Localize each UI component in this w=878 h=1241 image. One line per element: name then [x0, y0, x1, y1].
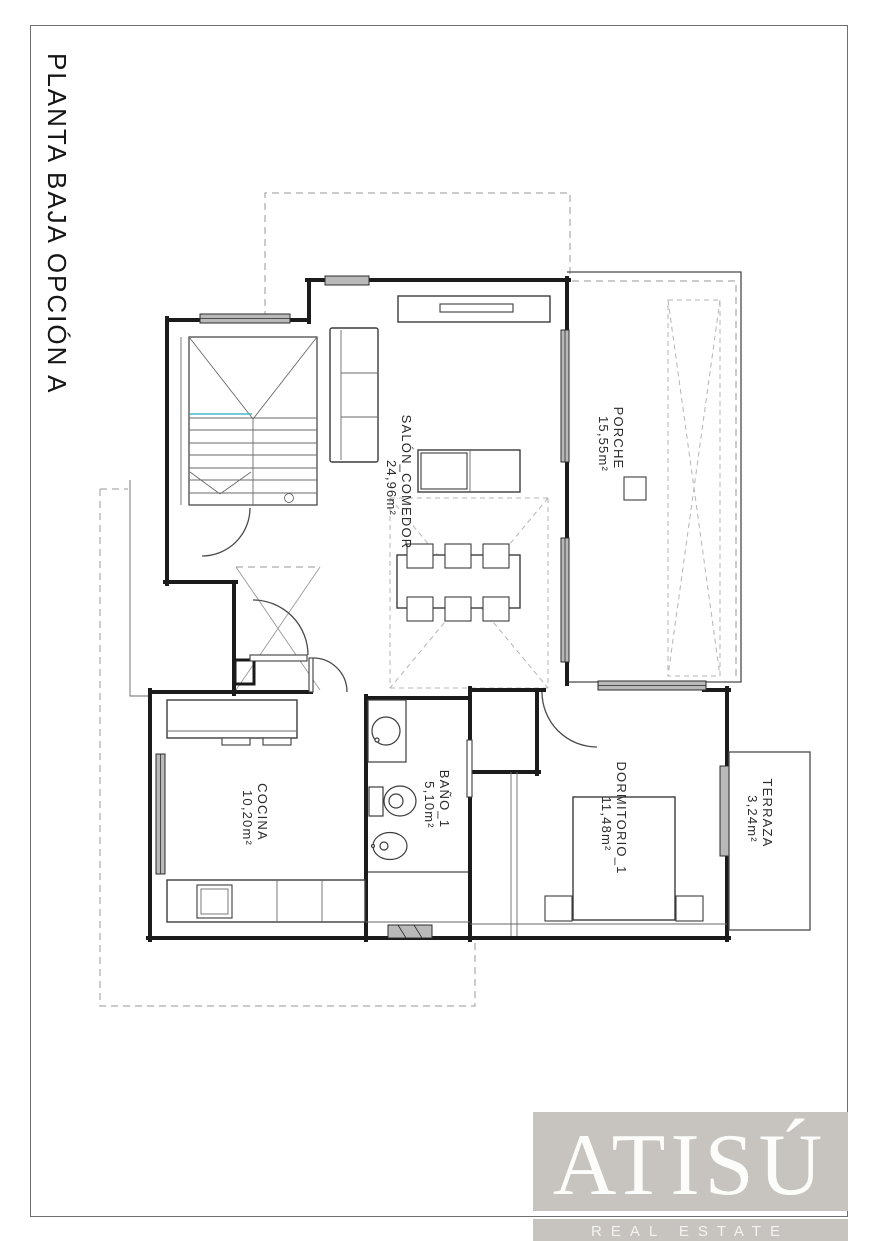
room-name: BAÑO_1 [437, 770, 452, 829]
logo-tagline: REAL ESTATE [591, 1223, 789, 1240]
brand-logo: ATISÚ REAL ESTATE [533, 1112, 848, 1241]
entry-cross-lines [236, 567, 320, 690]
window-salon-top [325, 276, 369, 285]
closet-partition [511, 772, 517, 936]
room-area: 15,55m² [596, 416, 611, 472]
room-name: COCINA [255, 783, 270, 841]
staircase [181, 337, 317, 505]
nightstand-right [676, 896, 703, 921]
page-border [31, 26, 848, 1217]
porch [567, 272, 741, 682]
bathroom-door-leaf [467, 740, 472, 797]
wall-west-upper [165, 318, 236, 694]
porch-roof-dashed [572, 281, 736, 678]
sideboard-shelf [440, 304, 513, 312]
room-name: SALÓN_COMEDOR [399, 415, 414, 550]
wall-shower-closet [470, 690, 539, 774]
front-door-leaf [309, 658, 313, 692]
room-area: 11,48m² [599, 796, 614, 851]
room-name: DORMITORIO_1 [614, 761, 629, 874]
entry-step-slab [250, 655, 307, 661]
porch-edge [567, 272, 741, 682]
label-salon: SALÓN_COMEDOR 24,96m² [384, 415, 414, 550]
room-name: TERRAZA [760, 778, 775, 847]
toilet-tank [369, 787, 383, 816]
door-arc-entry [253, 600, 308, 655]
terrain-step-line [130, 480, 152, 696]
label-cocina: COCINA 10,20m² [240, 783, 270, 846]
living-room-furniture [330, 296, 550, 621]
kitchen-counter-top [167, 700, 297, 738]
room-area: 24,96m² [384, 460, 399, 516]
kitchen-sink [197, 885, 232, 918]
window-bathroom [388, 925, 432, 938]
logo-wordmark: ATISÚ [553, 1117, 827, 1214]
label-porche: PORCHE 15,55m² [596, 407, 626, 472]
door-arc-stairs [202, 508, 250, 556]
bidet [373, 833, 407, 860]
sofa [330, 328, 378, 462]
porch-deck-cross [668, 300, 720, 676]
room-area: 3,24m² [745, 795, 760, 843]
inner-wall-faces [366, 922, 727, 924]
bathroom-fixtures [368, 700, 468, 872]
label-bano: BAÑO_1 5,10m² [422, 770, 452, 829]
page-title: PLANTA BAJA OPCIÓN A [42, 53, 72, 395]
label-terraza: TERRAZA 3,24m² [745, 778, 775, 847]
porch-column [624, 477, 646, 500]
room-area: 10,20m² [240, 790, 255, 846]
door-arc-bedroom [542, 692, 597, 747]
room-area: 5,10m² [422, 781, 437, 829]
entry-wall-stub [235, 660, 254, 684]
floor-plan-drawing: PLANTA BAJA OPCIÓN A [0, 0, 878, 1241]
window-bedroom-east [720, 766, 729, 856]
room-name: PORCHE [611, 407, 626, 470]
stair-direction-arrow [190, 472, 251, 494]
nightstand-left [545, 896, 572, 921]
